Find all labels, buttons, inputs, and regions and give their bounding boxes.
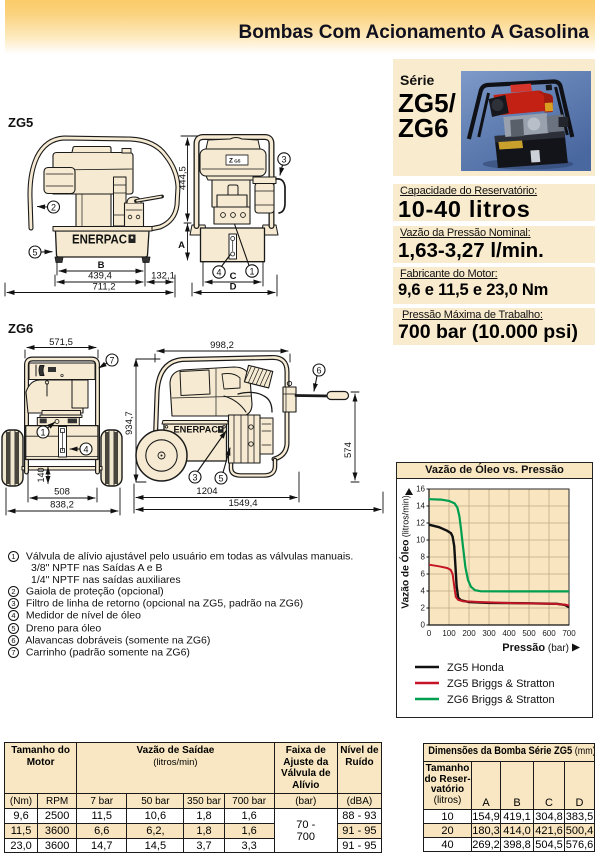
svg-text:Pressão (bar): Pressão (bar): [502, 642, 569, 654]
svg-text:2: 2: [51, 203, 56, 213]
svg-text:0: 0: [421, 621, 426, 630]
svg-text:571,5: 571,5: [49, 337, 73, 348]
svg-text:200: 200: [462, 629, 476, 638]
svg-text:132,1: 132,1: [151, 271, 175, 282]
svg-text:Vazão de Óleo (litros/min): Vazão de Óleo (litros/min): [399, 495, 412, 609]
svg-text:3: 3: [281, 155, 286, 165]
svg-text:2: 2: [421, 604, 426, 613]
svg-text:600: 600: [542, 629, 556, 638]
svg-text:16: 16: [416, 485, 425, 494]
svg-text:14: 14: [416, 502, 425, 511]
svg-text:4: 4: [421, 587, 426, 596]
svg-text:ZG5 Honda: ZG5 Honda: [447, 662, 505, 674]
svg-text:100: 100: [442, 629, 456, 638]
svg-text:Z G5: Z G5: [229, 158, 241, 165]
svg-text:700: 700: [562, 629, 576, 638]
svg-text:4: 4: [83, 445, 88, 455]
svg-text:1204: 1204: [196, 486, 217, 497]
svg-text:300: 300: [482, 629, 496, 638]
svg-text:0: 0: [427, 629, 432, 638]
svg-text:934,7: 934,7: [124, 411, 135, 435]
svg-text:1: 1: [249, 267, 254, 277]
svg-text:140: 140: [36, 467, 46, 482]
svg-text:439,4: 439,4: [88, 271, 112, 282]
svg-text:4: 4: [216, 268, 221, 278]
svg-text:ENERPAC: ENERPAC: [72, 232, 128, 247]
svg-text:10: 10: [416, 536, 425, 545]
svg-text:400: 400: [502, 629, 516, 638]
svg-text:1: 1: [40, 428, 45, 438]
svg-text:7: 7: [109, 356, 114, 366]
svg-text:ZG6 Briggs & Stratton: ZG6 Briggs & Stratton: [447, 694, 555, 706]
svg-text:A: A: [178, 240, 185, 251]
svg-text:6: 6: [316, 366, 321, 376]
svg-text:998,2: 998,2: [210, 340, 234, 351]
svg-text:5: 5: [32, 248, 37, 258]
svg-text:ZG5 Briggs & Stratton: ZG5 Briggs & Stratton: [447, 678, 555, 690]
svg-text:500: 500: [522, 629, 536, 638]
svg-text:6: 6: [421, 570, 426, 579]
svg-text:5: 5: [218, 474, 223, 484]
svg-text:3: 3: [192, 473, 197, 483]
svg-text:B: B: [98, 260, 105, 271]
svg-text:12: 12: [416, 519, 425, 528]
svg-text:C: C: [230, 271, 237, 282]
svg-text:ENERPAC: ENERPAC: [174, 425, 219, 436]
svg-text:711,2: 711,2: [92, 282, 115, 293]
svg-text:1549,4: 1549,4: [228, 498, 257, 509]
svg-text:8: 8: [421, 553, 426, 562]
svg-text:444,5: 444,5: [178, 166, 189, 190]
svg-text:574: 574: [343, 442, 354, 458]
svg-text:838,2: 838,2: [50, 500, 74, 511]
svg-text:508: 508: [54, 487, 70, 498]
svg-text:D: D: [230, 282, 237, 293]
